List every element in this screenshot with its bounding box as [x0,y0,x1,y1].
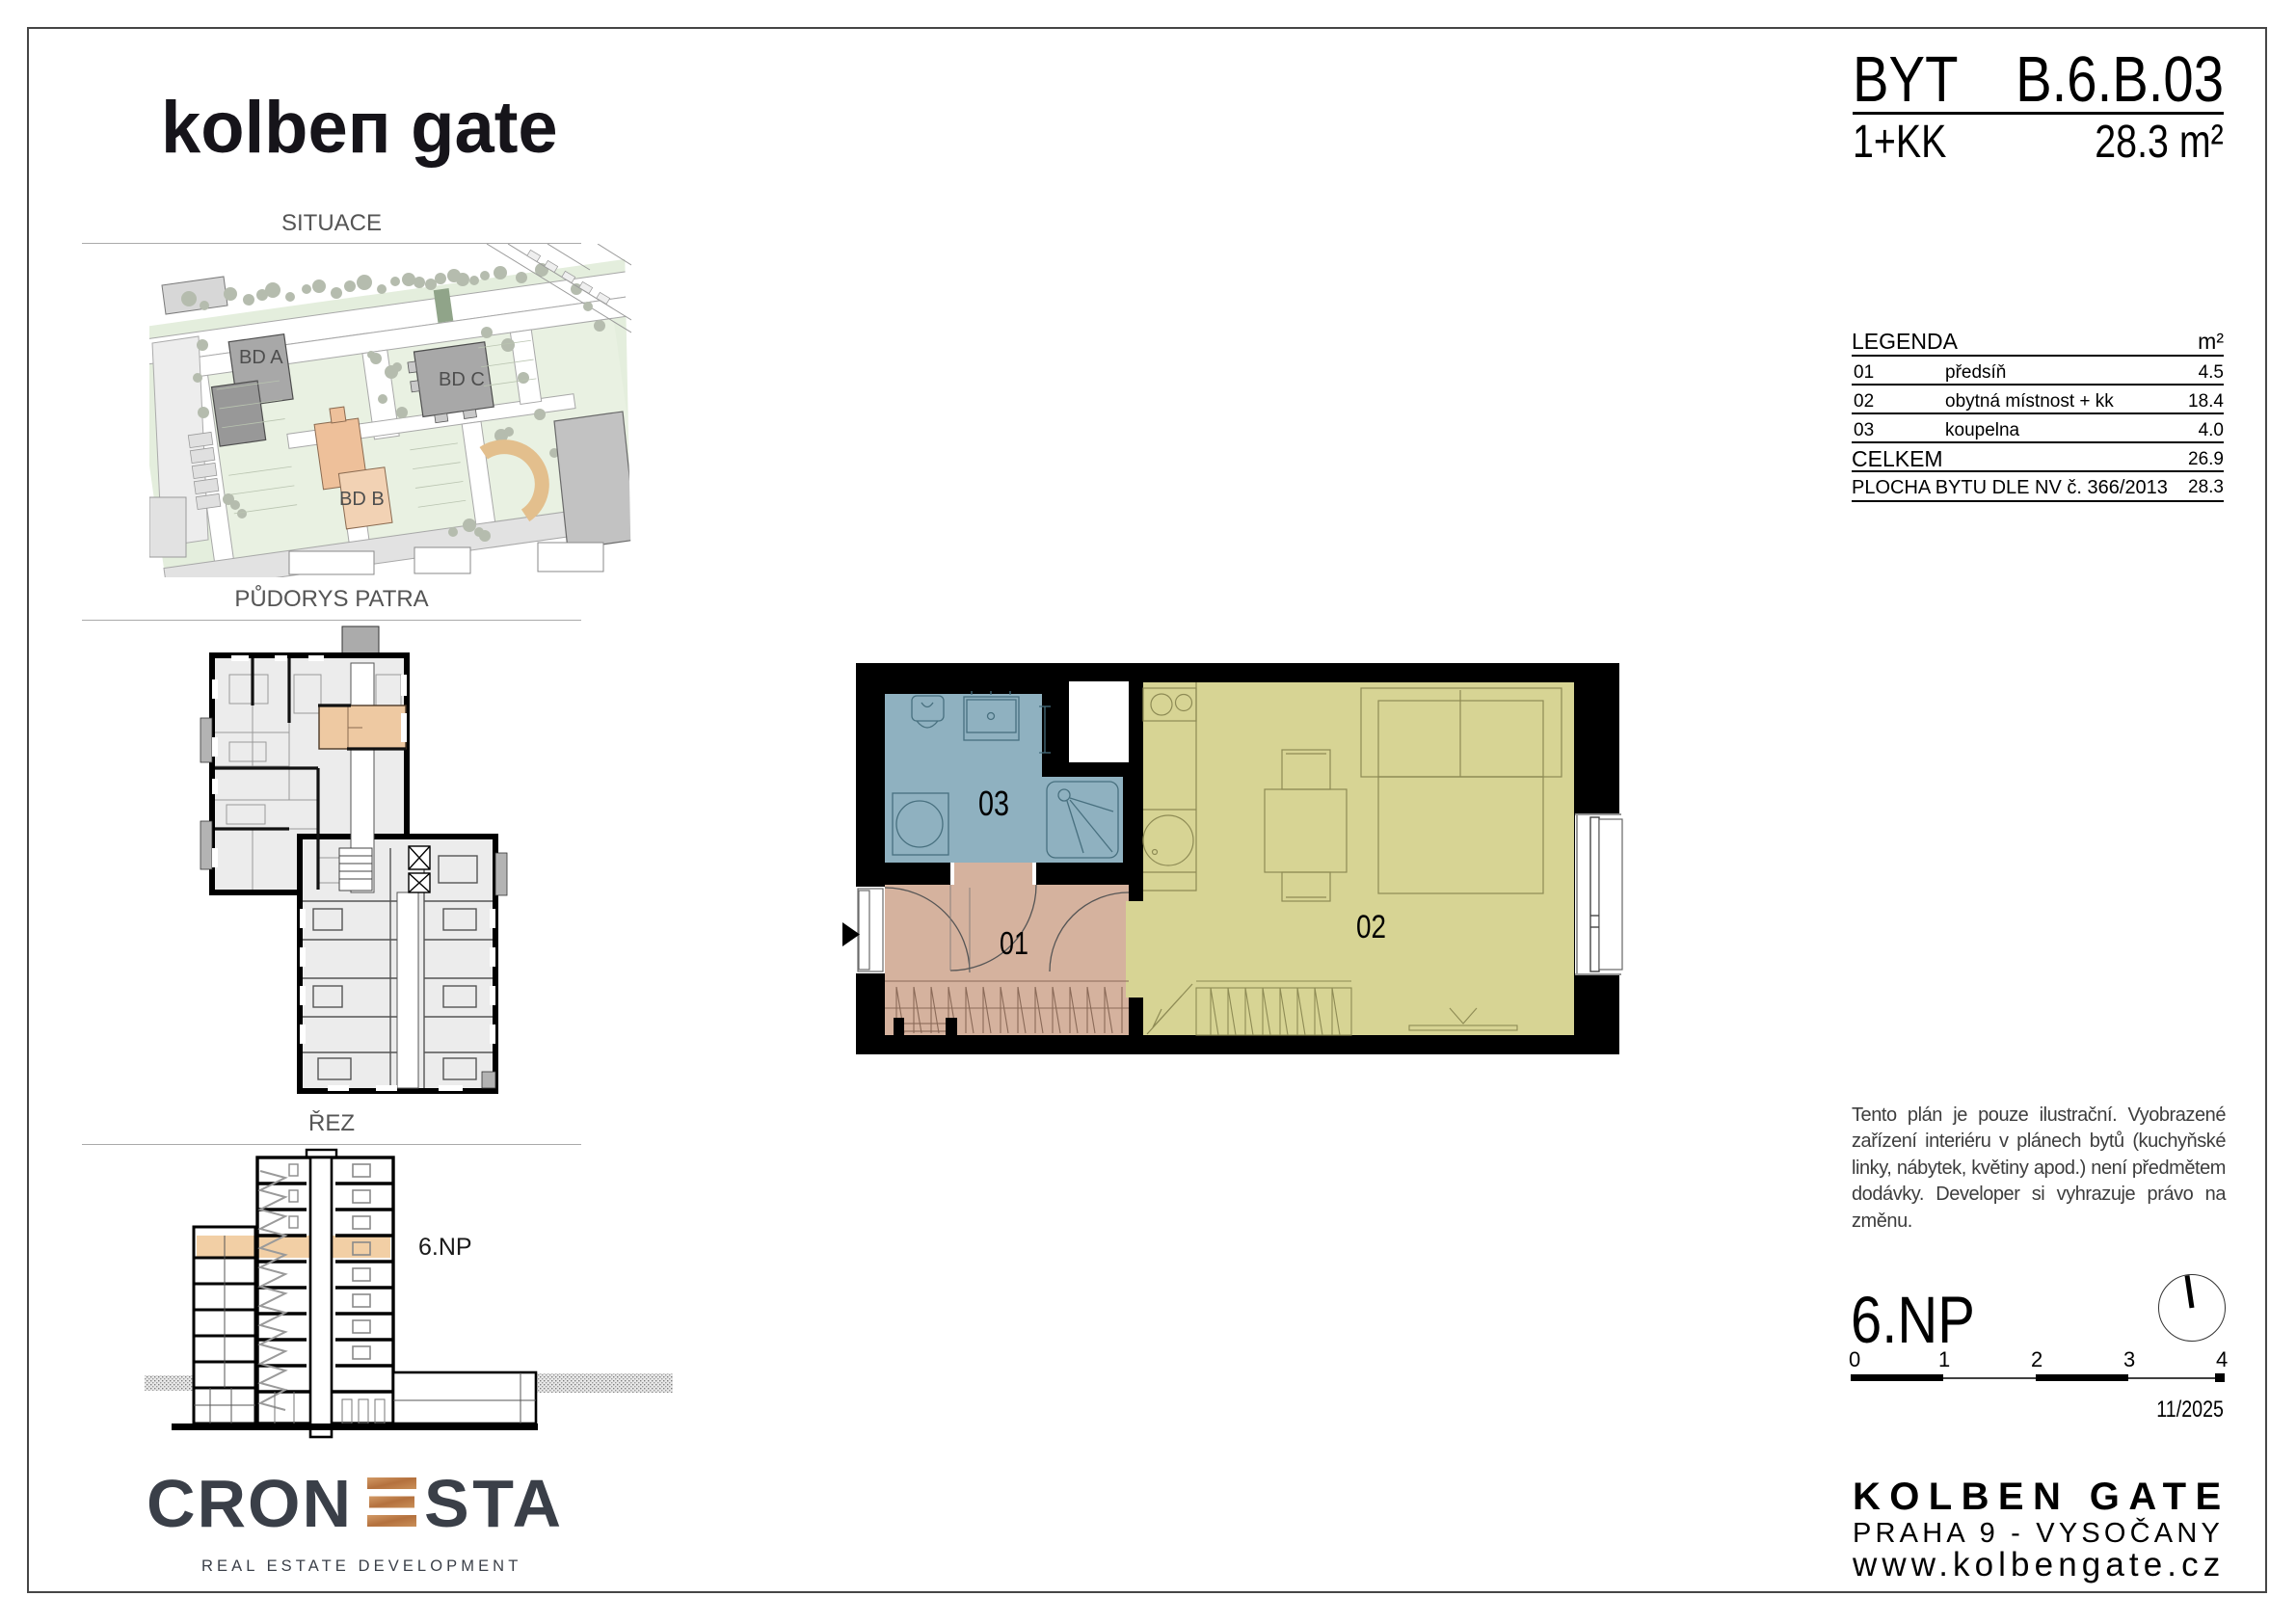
svg-text:BD C: BD C [439,369,485,390]
svg-text:2: 2 [2031,1347,2042,1371]
svg-text:3: 3 [2123,1347,2135,1371]
svg-text:03: 03 [978,784,1009,823]
svg-text:01: 01 [1000,925,1028,961]
svg-text:02: 02 [1356,909,1386,945]
svg-text:BD B: BD B [339,489,385,510]
svg-text:1: 1 [1938,1347,1950,1371]
svg-text:BD A: BD A [239,347,283,368]
svg-text:STA: STA [424,1466,561,1541]
svg-text:4: 4 [2216,1347,2228,1371]
svg-text:CRON: CRON [147,1466,351,1541]
svg-text:0: 0 [1849,1347,1860,1371]
svg-text:REAL ESTATE DEVELOPMENT: REAL ESTATE DEVELOPMENT [201,1557,521,1575]
svg-text:6.NP: 6.NP [418,1234,472,1261]
